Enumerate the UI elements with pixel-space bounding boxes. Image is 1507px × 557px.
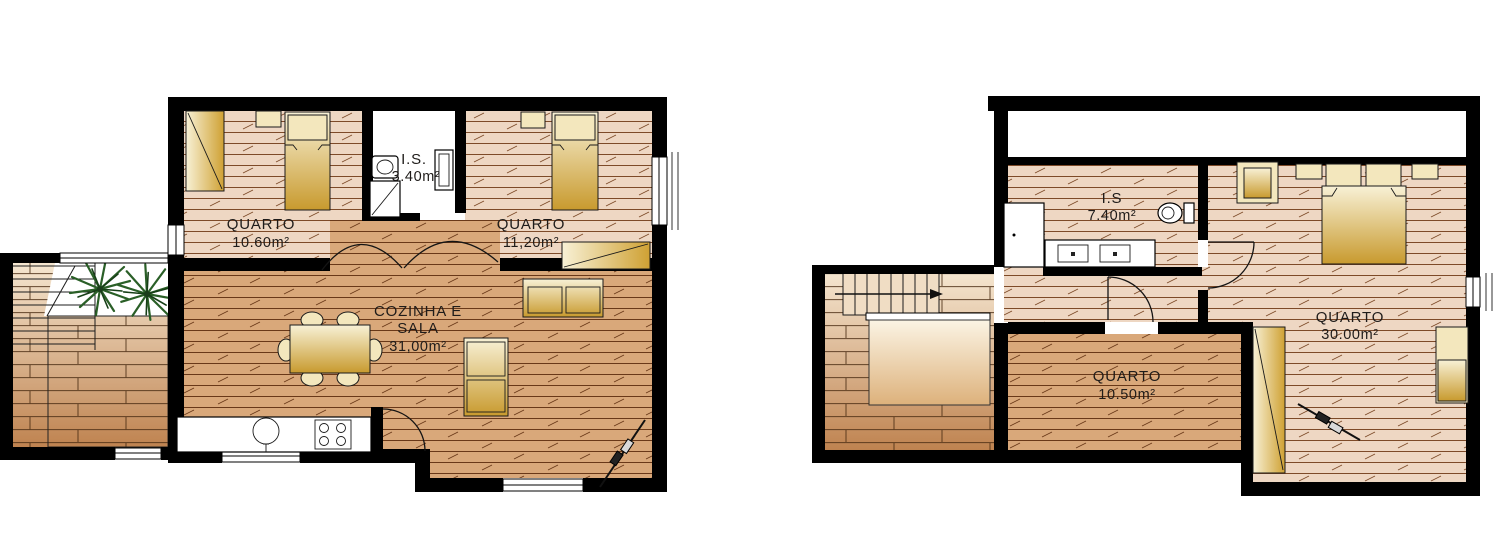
shower (1004, 203, 1044, 267)
kitchen (177, 417, 371, 452)
toilet (1158, 203, 1194, 223)
double-vanity (1045, 240, 1155, 267)
nightstand (1296, 164, 1322, 179)
balconette (1486, 273, 1492, 311)
room-label: QUARTO (1093, 368, 1161, 385)
nightstand (256, 111, 281, 127)
nightstand (1412, 164, 1438, 179)
kitchen-counter (177, 417, 371, 452)
window (115, 448, 161, 459)
balconette (672, 152, 678, 230)
balcony (825, 273, 994, 450)
armchair (464, 338, 508, 416)
room-label: SALA (397, 320, 439, 337)
sofa (523, 279, 603, 317)
wardrobe (1253, 327, 1285, 473)
room-area: 11,20m² (503, 235, 559, 251)
pillow (1366, 164, 1401, 186)
plan-upper-floor: I.S 7.40m² QUARTO 30.00m² QUARTO 10.50m² (812, 96, 1492, 496)
plan-ground-floor: QUARTO 10.60m² I.S. 3.40m² QUARTO 11,20m… (0, 97, 678, 492)
room-area: 10.50m² (1098, 387, 1155, 403)
floor-plan-drawing: QUARTO 10.60m² I.S. 3.40m² QUARTO 11,20m… (0, 0, 1507, 557)
window (168, 225, 184, 255)
void-open-below (1004, 111, 1466, 157)
nightstand (521, 112, 545, 128)
room-label: COZINHA E (374, 303, 462, 320)
room-label: QUARTO (497, 216, 565, 233)
window (652, 157, 667, 225)
room-area: 7.40m² (1088, 208, 1137, 224)
stairs (835, 273, 943, 315)
terrace-railing (60, 253, 168, 263)
hallway-floor (330, 220, 500, 258)
room-label: I.S (1102, 190, 1123, 207)
room-label: QUARTO (227, 216, 295, 233)
room-area: 30.00m² (1321, 327, 1378, 343)
room-area: 3.40m² (392, 169, 441, 185)
dresser (1237, 162, 1278, 203)
dresser (1436, 327, 1468, 403)
terrace (13, 254, 187, 447)
balcony-railing (866, 313, 990, 320)
room-label: QUARTO (1316, 309, 1384, 326)
room-area: 10.60m² (232, 235, 289, 251)
wardrobe (186, 111, 224, 191)
wardrobe (562, 242, 650, 269)
pillow (1326, 164, 1361, 186)
window (222, 451, 300, 462)
windows (1466, 273, 1492, 311)
room-label: I.S. (401, 151, 427, 168)
window (1466, 277, 1480, 307)
void-over-terrace (869, 320, 990, 405)
window (503, 479, 583, 491)
floor-plan-sheet: QUARTO 10.60m² I.S. 3.40m² QUARTO 11,20m… (0, 0, 1507, 557)
room-area: 31,00m² (389, 339, 446, 355)
single-bed (552, 112, 598, 210)
single-bed (285, 112, 330, 210)
dining-table (290, 325, 370, 373)
shower (370, 181, 400, 217)
